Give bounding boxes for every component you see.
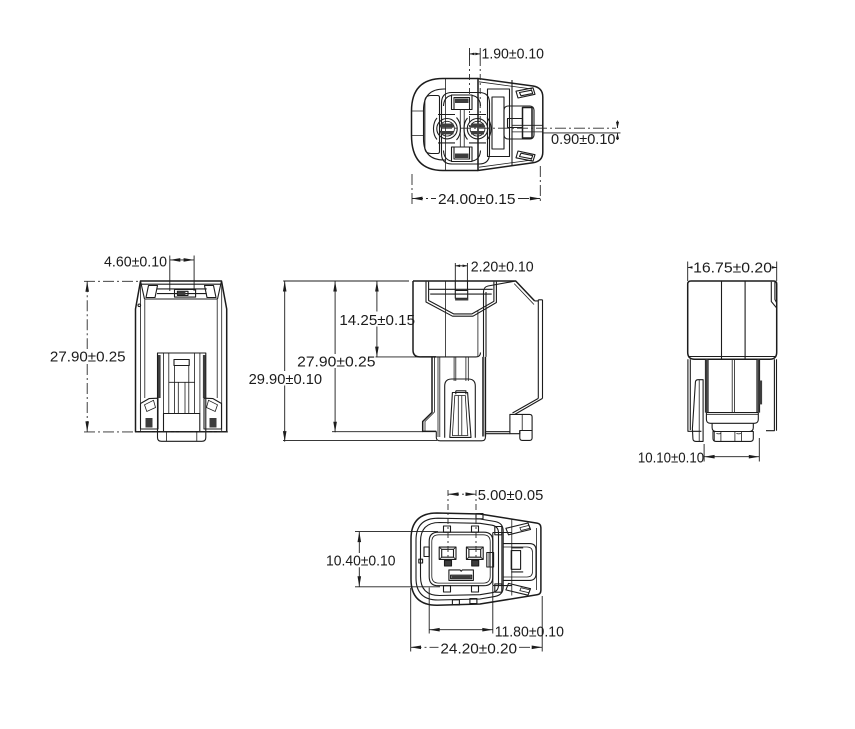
svg-text:24.00±0.15: 24.00±0.15 xyxy=(438,191,516,208)
svg-text:14.25±0.15: 14.25±0.15 xyxy=(339,312,415,329)
svg-text:24.20±0.20: 24.20±0.20 xyxy=(440,641,517,658)
svg-text:27.90±0.25: 27.90±0.25 xyxy=(297,354,375,371)
svg-text:16.75±0.20: 16.75±0.20 xyxy=(693,260,772,277)
svg-text:0.90±0.10: 0.90±0.10 xyxy=(551,131,616,148)
svg-text:4.60±0.10: 4.60±0.10 xyxy=(104,254,167,271)
svg-text:1.90±0.10: 1.90±0.10 xyxy=(482,46,545,63)
svg-text:10.40±0.10: 10.40±0.10 xyxy=(326,553,396,570)
svg-text:5.00±0.05: 5.00±0.05 xyxy=(478,487,544,504)
svg-text:27.90±0.25: 27.90±0.25 xyxy=(50,349,126,366)
svg-text:29.90±0.10: 29.90±0.10 xyxy=(249,371,323,388)
svg-text:11.80±0.10: 11.80±0.10 xyxy=(495,624,564,641)
svg-text:2.20±0.10: 2.20±0.10 xyxy=(471,259,534,276)
svg-text:10.10±0.10: 10.10±0.10 xyxy=(638,450,704,467)
